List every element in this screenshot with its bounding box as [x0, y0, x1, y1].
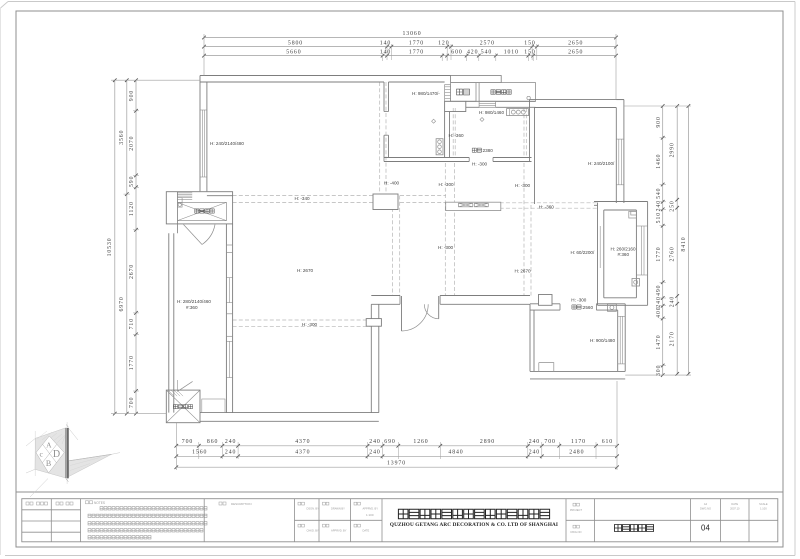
svg-text:APPRVD. BY: APPRVD. BY: [363, 507, 379, 511]
svg-text:8410: 8410: [681, 236, 687, 251]
svg-text:APPRVD. BY: APPRVD. BY: [331, 529, 347, 533]
svg-text:300: 300: [656, 365, 662, 376]
svg-text:13970: 13970: [387, 461, 406, 467]
svg-text:1470: 1470: [656, 334, 662, 349]
svg-text::2380: :2380: [481, 148, 493, 153]
svg-text:DRAWN BY: DRAWN BY: [331, 507, 345, 511]
svg-text:H: 240/2100/: H: 240/2100/: [588, 161, 615, 166]
svg-text:H: 900/1480: H: 900/1480: [590, 338, 615, 343]
svg-text:240: 240: [369, 439, 380, 445]
svg-text:PROJECT: PROJECT: [570, 508, 583, 512]
svg-text:B: B: [46, 459, 51, 468]
svg-text:H: 260/2160: H: 260/2160: [611, 246, 636, 251]
svg-text:2650: 2650: [568, 40, 583, 46]
svg-text:2760: 2760: [670, 246, 676, 261]
svg-text:CHKD. BY: CHKD. BY: [307, 529, 320, 533]
svg-text:1120: 1120: [129, 201, 135, 216]
svg-text:#:360: #:360: [618, 252, 630, 257]
svg-text:1170: 1170: [571, 439, 586, 445]
svg-text:1:100: 1:100: [366, 513, 374, 517]
svg-text:1:100: 1:100: [760, 507, 767, 511]
svg-text:H: 60/2200/: H: 60/2200/: [571, 250, 595, 255]
svg-text:H: -360: H: -360: [539, 205, 555, 210]
svg-text:490: 490: [656, 284, 662, 295]
svg-text:H: 240/2140/480: H: 240/2140/480: [210, 141, 244, 146]
svg-text:240: 240: [225, 439, 236, 445]
svg-text:540: 540: [656, 187, 662, 198]
svg-text:240: 240: [225, 450, 236, 456]
svg-text:1460: 1460: [656, 154, 662, 169]
svg-text:2670: 2670: [129, 264, 135, 279]
svg-text:150: 150: [524, 40, 535, 46]
svg-text:H: -340: H: -340: [295, 196, 311, 201]
svg-text:H: -300: H: -300: [302, 322, 318, 327]
svg-text:2070: 2070: [129, 135, 135, 150]
svg-text:5660: 5660: [286, 49, 301, 55]
svg-text:QUZHOU GETANG ARC DECORATION: QUZHOU GETANG ARC DECORATION & CO. LTD O…: [390, 522, 558, 528]
svg-text:4370: 4370: [295, 439, 310, 445]
svg-text:2480: 2480: [569, 450, 584, 456]
svg-text:510: 510: [656, 212, 662, 223]
svg-text:10530: 10530: [107, 237, 113, 256]
svg-text:690: 690: [384, 439, 395, 445]
svg-text:H: -300: H: -300: [571, 298, 587, 303]
svg-text:150: 150: [524, 49, 535, 55]
svg-text:2650: 2650: [568, 49, 583, 55]
svg-text:1010: 1010: [504, 49, 519, 55]
svg-text:2170: 2170: [670, 331, 676, 346]
svg-text:1770: 1770: [409, 40, 424, 46]
svg-text:04: 04: [701, 524, 711, 533]
svg-text:H: -300: H: -300: [515, 183, 531, 188]
svg-text:240: 240: [529, 450, 540, 456]
svg-text:DWG.NO: DWG.NO: [571, 530, 582, 534]
svg-text:600: 600: [451, 49, 462, 55]
svg-text:2890: 2890: [480, 439, 495, 445]
svg-text:A4: A4: [704, 502, 708, 506]
svg-text:#:360: #:360: [186, 305, 198, 310]
svg-text::2560: :2560: [582, 305, 594, 310]
svg-text:5800: 5800: [288, 40, 303, 46]
svg-text:SCALE: SCALE: [759, 502, 768, 506]
svg-text:H: -300: H: -300: [438, 245, 454, 250]
svg-text:DWG.NO: DWG.NO: [700, 507, 711, 511]
svg-text:700: 700: [129, 397, 135, 408]
svg-text:2570: 2570: [480, 40, 495, 46]
svg-text:400: 400: [656, 306, 662, 317]
svg-text:4840: 4840: [448, 450, 463, 456]
svg-text:DATE: DATE: [363, 529, 370, 533]
svg-text:H: 2670: H: 2670: [515, 268, 532, 273]
svg-text:860: 860: [207, 439, 218, 445]
svg-text:420: 420: [467, 49, 478, 55]
svg-text:900: 900: [656, 116, 662, 127]
svg-text:D: D: [53, 449, 60, 460]
svg-text:DATE: DATE: [731, 502, 738, 506]
svg-text:H: -400: H: -400: [384, 180, 400, 185]
svg-text:H: -300: H: -300: [472, 162, 488, 167]
svg-text:900: 900: [129, 90, 135, 101]
svg-text:610: 610: [602, 439, 613, 445]
svg-text:1770: 1770: [656, 246, 662, 261]
svg-text:H: 2670: H: 2670: [297, 268, 314, 273]
svg-text:240: 240: [369, 450, 380, 456]
svg-text:240: 240: [670, 296, 676, 307]
svg-text:590: 590: [129, 176, 135, 187]
svg-text:1560: 1560: [192, 450, 207, 456]
svg-text:H: 980/1470/-: H: 980/1470/-: [412, 91, 440, 96]
svg-text:2990: 2990: [670, 142, 676, 157]
svg-text:NOTES: NOTES: [94, 501, 105, 505]
svg-text:140: 140: [380, 49, 391, 55]
svg-text:140: 140: [380, 40, 391, 46]
svg-text:710: 710: [129, 318, 135, 329]
svg-text:H: 280/2140/460: H: 280/2140/460: [177, 299, 211, 304]
svg-text:700: 700: [544, 439, 555, 445]
svg-text:540: 540: [481, 49, 492, 55]
svg-text:DESCRIPTION: DESCRIPTION: [231, 502, 252, 506]
svg-text:H: -300: H: -300: [439, 182, 455, 187]
svg-text:H: 980/1460: H: 980/1460: [479, 110, 504, 115]
svg-text:240: 240: [529, 439, 540, 445]
svg-text:700: 700: [182, 439, 193, 445]
svg-text:A: A: [46, 440, 52, 449]
svg-text:250: 250: [670, 200, 676, 211]
svg-text:3560: 3560: [119, 130, 125, 145]
svg-text:4370: 4370: [295, 450, 310, 456]
svg-text:1770: 1770: [409, 49, 424, 55]
svg-text:13060: 13060: [403, 31, 422, 37]
svg-text:1260: 1260: [413, 439, 428, 445]
svg-text:1770: 1770: [129, 355, 135, 370]
svg-text:H: -360: H: -360: [449, 133, 465, 138]
svg-text:120: 120: [438, 40, 449, 46]
svg-text:6970: 6970: [119, 296, 125, 311]
svg-text:DSGN. BY: DSGN. BY: [307, 507, 320, 511]
svg-text:2007.10: 2007.10: [730, 507, 740, 511]
